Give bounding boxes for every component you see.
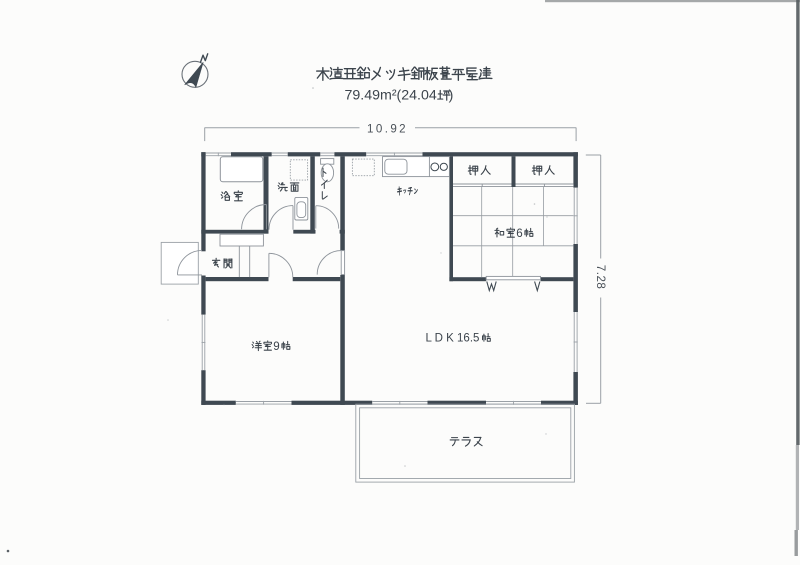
svg-text:10.92: 10.92 [367, 123, 408, 136]
svg-text:79.49m²(24.04: 79.49m²(24.04 [345, 87, 437, 103]
svg-text:7.28: 7.28 [594, 265, 607, 290]
svg-text:L D K 16.5: L D K 16.5 [426, 333, 480, 345]
svg-text:6: 6 [516, 227, 522, 240]
svg-text:9: 9 [273, 340, 279, 353]
svg-text:): ) [449, 87, 454, 103]
